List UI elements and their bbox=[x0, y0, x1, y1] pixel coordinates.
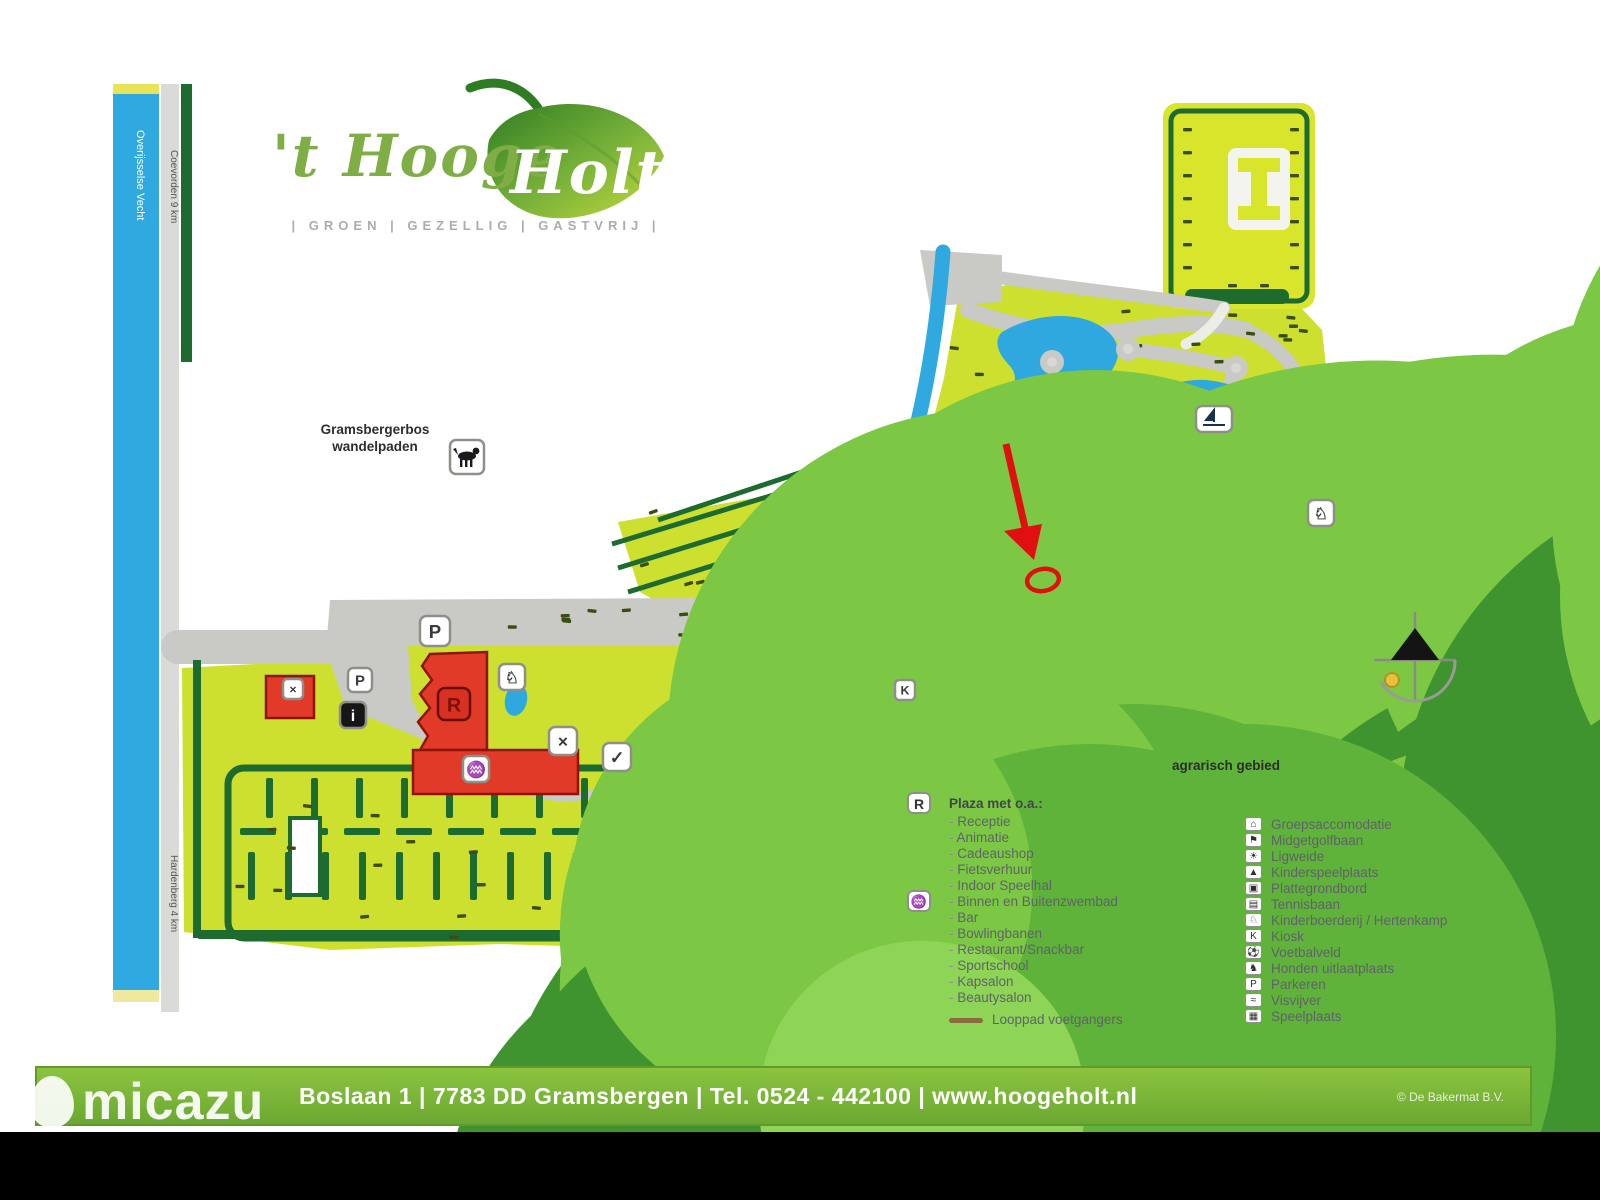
legend-pool-items: Binnen en BuitenzwembadBarBowlingbanenRe… bbox=[949, 894, 1205, 1006]
check-icon: ✓ bbox=[603, 743, 631, 771]
facility-icon: P bbox=[1245, 977, 1262, 991]
logo-tagline: | GROEN | GEZELLIG | GASTVRIJ | bbox=[266, 218, 686, 233]
facility-icon: ♞ bbox=[1245, 961, 1262, 975]
parking-icon: P bbox=[420, 616, 450, 646]
plot-number-mark bbox=[1191, 342, 1200, 346]
west-building-icon: × bbox=[283, 679, 303, 699]
plot-number-mark bbox=[1290, 128, 1299, 131]
legend-item: Binnen en Buitenzwembad bbox=[949, 894, 1205, 910]
legend-item: Fietsverhuur bbox=[949, 862, 1205, 878]
road-label-bottom: Hardenberg 4 km bbox=[168, 855, 179, 932]
hedge-line bbox=[193, 660, 201, 938]
cul-de-sac-center bbox=[1123, 344, 1133, 354]
legend-facility-row: ≈Visvijver bbox=[1245, 992, 1447, 1008]
facility-label: Honden uitlaatplaats bbox=[1271, 961, 1394, 976]
legend-item: Bowlingbanen bbox=[949, 926, 1205, 942]
plot-number-mark bbox=[1183, 197, 1192, 200]
plot-number-mark bbox=[975, 373, 984, 377]
plot-number-mark bbox=[449, 936, 458, 939]
plot-number-mark bbox=[1183, 243, 1192, 246]
swimming-icon: ♒ bbox=[466, 760, 486, 779]
hedge-bar bbox=[433, 852, 440, 900]
plot-number-mark bbox=[406, 840, 415, 844]
info-icon: i bbox=[351, 707, 355, 725]
facility-icon: K bbox=[1245, 929, 1262, 943]
hedge-bar bbox=[507, 852, 514, 900]
walkway-label: Looppad voetgangers bbox=[992, 1012, 1123, 1027]
boat-sign bbox=[1196, 406, 1232, 432]
swimming-icon: ♒ bbox=[463, 756, 489, 782]
legend-item: Kapsalon bbox=[949, 974, 1205, 990]
north-field-building bbox=[1228, 148, 1290, 230]
plot-number-mark bbox=[1279, 334, 1288, 338]
agrarian-label: agrarisch gebied bbox=[1172, 758, 1280, 773]
micazu-watermark: micazu bbox=[30, 1072, 264, 1132]
hedge-bar bbox=[248, 852, 255, 900]
legend-walkway-row: Looppad voetgangers bbox=[949, 1011, 1205, 1029]
kiosk-icon: K bbox=[901, 684, 910, 698]
plot-number-mark bbox=[1183, 174, 1192, 177]
logo-name-suffix: Holt bbox=[510, 138, 665, 208]
plot-number-mark bbox=[1183, 220, 1192, 223]
legend-left-column: R ♒ Plaza met o.a.: ReceptieAnimatieCade… bbox=[905, 794, 1205, 1029]
plot-number-mark bbox=[561, 614, 570, 618]
legend-facility-row: KKiosk bbox=[1245, 928, 1447, 944]
walkway-line-icon bbox=[949, 1018, 983, 1023]
treeline-strip bbox=[181, 84, 192, 362]
deer-park-icon: ♘ bbox=[1308, 500, 1334, 526]
sport-icon: × bbox=[549, 727, 577, 755]
plot-number-mark bbox=[477, 883, 486, 887]
legend-facility-row: ♞Honden uitlaatplaats bbox=[1245, 960, 1447, 976]
hedge-bar bbox=[544, 852, 551, 900]
footer-address: Boslaan 1 | 7783 DD Gramsbergen | Tel. 0… bbox=[299, 1083, 1137, 1110]
legend-facility-row: ▣Plattegrondbord bbox=[1245, 880, 1447, 896]
hedge-bar bbox=[470, 852, 477, 900]
cul-de-sac-center bbox=[1047, 357, 1057, 367]
plot-number-mark bbox=[469, 850, 478, 854]
legend-facility-row: ⚑Midgetgolfbaan bbox=[1245, 832, 1447, 848]
legend-facility-row: PParkeren bbox=[1245, 976, 1447, 992]
hedge-bar bbox=[396, 828, 432, 835]
hedge-bar bbox=[401, 778, 408, 818]
plot-number-mark bbox=[1283, 338, 1292, 341]
hedge-bar bbox=[344, 828, 380, 835]
facility-label: Parkeren bbox=[1271, 977, 1326, 992]
legend-facility-row: ☀Ligweide bbox=[1245, 848, 1447, 864]
pool-building bbox=[413, 750, 578, 794]
plot-number-mark bbox=[1228, 284, 1237, 287]
parking-icon-small: P bbox=[348, 668, 372, 692]
legend-item: Indoor Speelhal bbox=[949, 878, 1205, 894]
legend-item: Animatie bbox=[949, 830, 1205, 846]
facility-label: Visvijver bbox=[1271, 993, 1321, 1008]
legend-item: Beautysalon bbox=[949, 990, 1205, 1006]
legend-item: Restaurant/Snackbar bbox=[949, 942, 1205, 958]
hedge-bar bbox=[311, 778, 318, 818]
plot-number-mark bbox=[1289, 324, 1298, 328]
plot-number-mark bbox=[1290, 220, 1299, 223]
plot-number-mark bbox=[1214, 360, 1223, 364]
facility-label: Tennisbaan bbox=[1271, 897, 1340, 912]
check-icon: ✓ bbox=[610, 747, 625, 767]
facility-icon: ▣ bbox=[1245, 881, 1262, 895]
legend-item: Receptie bbox=[949, 814, 1205, 830]
letterbox-bottom bbox=[0, 1132, 1600, 1200]
plot-number-mark bbox=[648, 509, 658, 515]
facility-label: Voetbalveld bbox=[1271, 945, 1341, 960]
facility-icon: ▤ bbox=[1245, 897, 1262, 911]
legend-facility-row: ♘Kinderboerderij / Hertenkamp bbox=[1245, 912, 1447, 928]
hedge-bar bbox=[396, 852, 403, 900]
plot-number-mark bbox=[1290, 197, 1299, 200]
map-legend: R ♒ Plaza met o.a.: ReceptieAnimatieCade… bbox=[905, 794, 1555, 1054]
facility-label: Groepsaccomodatie bbox=[1271, 817, 1392, 832]
plot-number-mark bbox=[371, 814, 380, 818]
footer-copyright: © De Bakermat B.V. bbox=[1397, 1090, 1504, 1104]
sport-icon: × bbox=[558, 731, 568, 751]
parking-icon-small: P bbox=[355, 674, 365, 690]
strip-cap-top bbox=[113, 84, 159, 94]
facility-label: Kinderboerderij / Hertenkamp bbox=[1271, 913, 1447, 928]
legend-facility-row: ▦Speelplaats bbox=[1245, 1008, 1447, 1024]
road-label-top: Coevorden 9 km bbox=[168, 150, 179, 223]
hedge-bar bbox=[356, 778, 363, 818]
forest-label-1: Gramsbergerbos bbox=[321, 422, 430, 437]
hedge-bar bbox=[500, 828, 536, 835]
facility-icon: ⚽ bbox=[1245, 945, 1262, 959]
west-building-icon: × bbox=[289, 683, 296, 697]
plot-number-mark bbox=[622, 608, 631, 612]
facility-label: Kiosk bbox=[1271, 929, 1304, 944]
plot-number-mark bbox=[1290, 151, 1299, 154]
plot-number-mark bbox=[1121, 309, 1130, 313]
facility-label: Plattegrondbord bbox=[1271, 881, 1367, 896]
micazu-egg-icon bbox=[30, 1076, 74, 1128]
facility-label: Midgetgolfbaan bbox=[1271, 833, 1363, 848]
plot-number-mark bbox=[235, 885, 244, 888]
hedge-bar bbox=[448, 828, 484, 835]
compass-sun-dot bbox=[1385, 673, 1399, 687]
legend-facility-row: ▤Tennisbaan bbox=[1245, 896, 1447, 912]
legend-facility-row: ⚽Voetbalveld bbox=[1245, 944, 1447, 960]
plot-number-mark bbox=[1290, 266, 1299, 269]
facility-icon: ☀ bbox=[1245, 849, 1262, 863]
plot-number-mark bbox=[1290, 174, 1299, 177]
kiosk-icon: K bbox=[895, 680, 915, 700]
river-strip bbox=[113, 94, 159, 990]
park-logo: 't Hooge Holt | GROEN | GEZELLIG | GASTV… bbox=[272, 96, 752, 256]
cul-de-sac-center bbox=[1231, 363, 1241, 373]
park-map-page: Overijsselse Vecht Coevorden 9 km Harden… bbox=[0, 0, 1600, 1200]
petting-zoo-icon: ♘ bbox=[499, 664, 525, 690]
left-strips: Overijsselse Vecht Coevorden 9 km Harden… bbox=[113, 84, 192, 1012]
legend-item: Bar bbox=[949, 910, 1205, 926]
sanitary-building bbox=[290, 818, 320, 895]
legend-item: Sportschool bbox=[949, 958, 1205, 974]
parking-icon: P bbox=[429, 621, 441, 642]
hedge-bar bbox=[266, 778, 273, 818]
facility-icon: ▲ bbox=[1245, 865, 1262, 879]
legend-plaza-items: ReceptieAnimatieCadeaushopFietsverhuurIn… bbox=[949, 814, 1205, 894]
legend-pool-icon: ♒ bbox=[907, 890, 931, 912]
plot-number-mark bbox=[1228, 313, 1237, 317]
info-icon: i bbox=[340, 702, 366, 728]
plaza-r-icon: R bbox=[438, 688, 470, 720]
hedge-bar bbox=[359, 852, 366, 900]
facility-icon: ▦ bbox=[1245, 1009, 1262, 1023]
legend-right-column: ⌂Groepsaccomodatie⚑Midgetgolfbaan☀Ligwei… bbox=[1245, 816, 1447, 1024]
plot-number-mark bbox=[1183, 151, 1192, 154]
legend-item: Cadeaushop bbox=[949, 846, 1205, 862]
facility-label: Kinderspeelplaats bbox=[1271, 865, 1378, 880]
facility-label: Speelplaats bbox=[1271, 1009, 1342, 1024]
hedge-bar bbox=[322, 852, 329, 900]
facility-icon: ♘ bbox=[1245, 913, 1262, 927]
plot-number-mark bbox=[373, 863, 382, 867]
strip-cap-bottom bbox=[113, 990, 159, 1002]
micazu-wordmark: micazu bbox=[82, 1072, 264, 1132]
plot-number-mark bbox=[273, 889, 282, 893]
deer-park-icon: ♘ bbox=[1314, 505, 1328, 523]
plot-number-mark bbox=[508, 625, 517, 628]
legend-plaza-title: Plaza met o.a.: bbox=[949, 794, 1205, 814]
plot-number-mark bbox=[1260, 284, 1269, 287]
legend-facility-row: ▲Kinderspeelplaats bbox=[1245, 864, 1447, 880]
plaza-r-icon: R bbox=[447, 694, 461, 716]
plot-number-mark bbox=[1290, 243, 1299, 246]
dog-sign bbox=[450, 440, 484, 474]
facility-label: Ligweide bbox=[1271, 849, 1324, 864]
plot-number-mark bbox=[1183, 128, 1192, 131]
petting-zoo-icon: ♘ bbox=[505, 669, 519, 687]
forest-label-2: wandelpaden bbox=[331, 439, 418, 454]
facility-icon: ≈ bbox=[1245, 993, 1262, 1007]
facility-icon: ⌂ bbox=[1245, 817, 1262, 831]
plot-number-mark bbox=[1183, 266, 1192, 269]
legend-facility-row: ⌂Groepsaccomodatie bbox=[1245, 816, 1447, 832]
legend-plaza-icon: R bbox=[907, 792, 931, 814]
plot-number-mark bbox=[287, 846, 296, 850]
river-label: Overijsselse Vecht bbox=[134, 130, 146, 220]
facility-icon: ⚑ bbox=[1245, 833, 1262, 847]
